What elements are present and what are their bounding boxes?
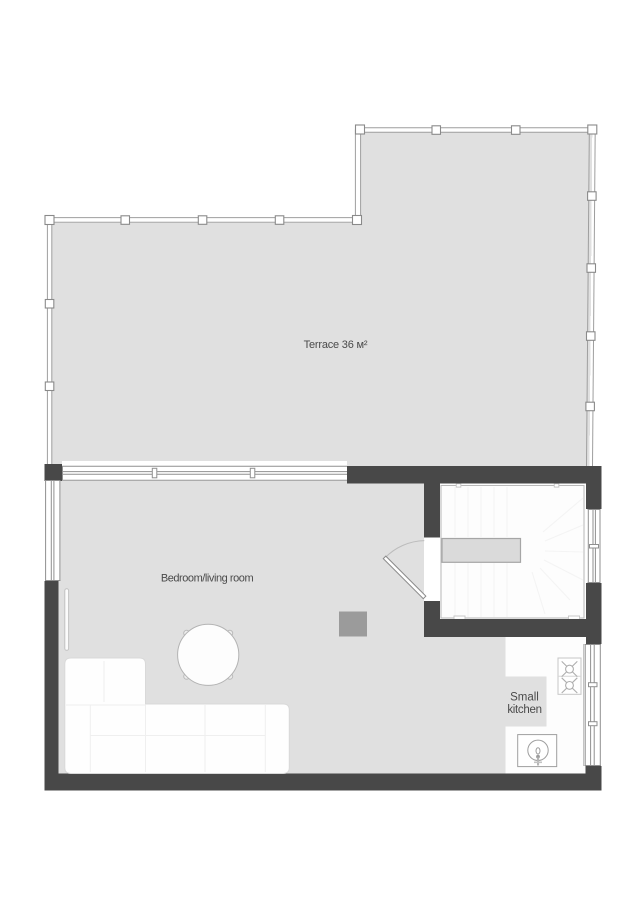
svg-text:Terrace 36 м²: Terrace 36 м² [304, 339, 368, 351]
svg-text:kitchen: kitchen [507, 704, 541, 716]
svg-text:Small: Small [510, 692, 539, 704]
svg-text:Bedroom/living room: Bedroom/living room [161, 573, 254, 585]
